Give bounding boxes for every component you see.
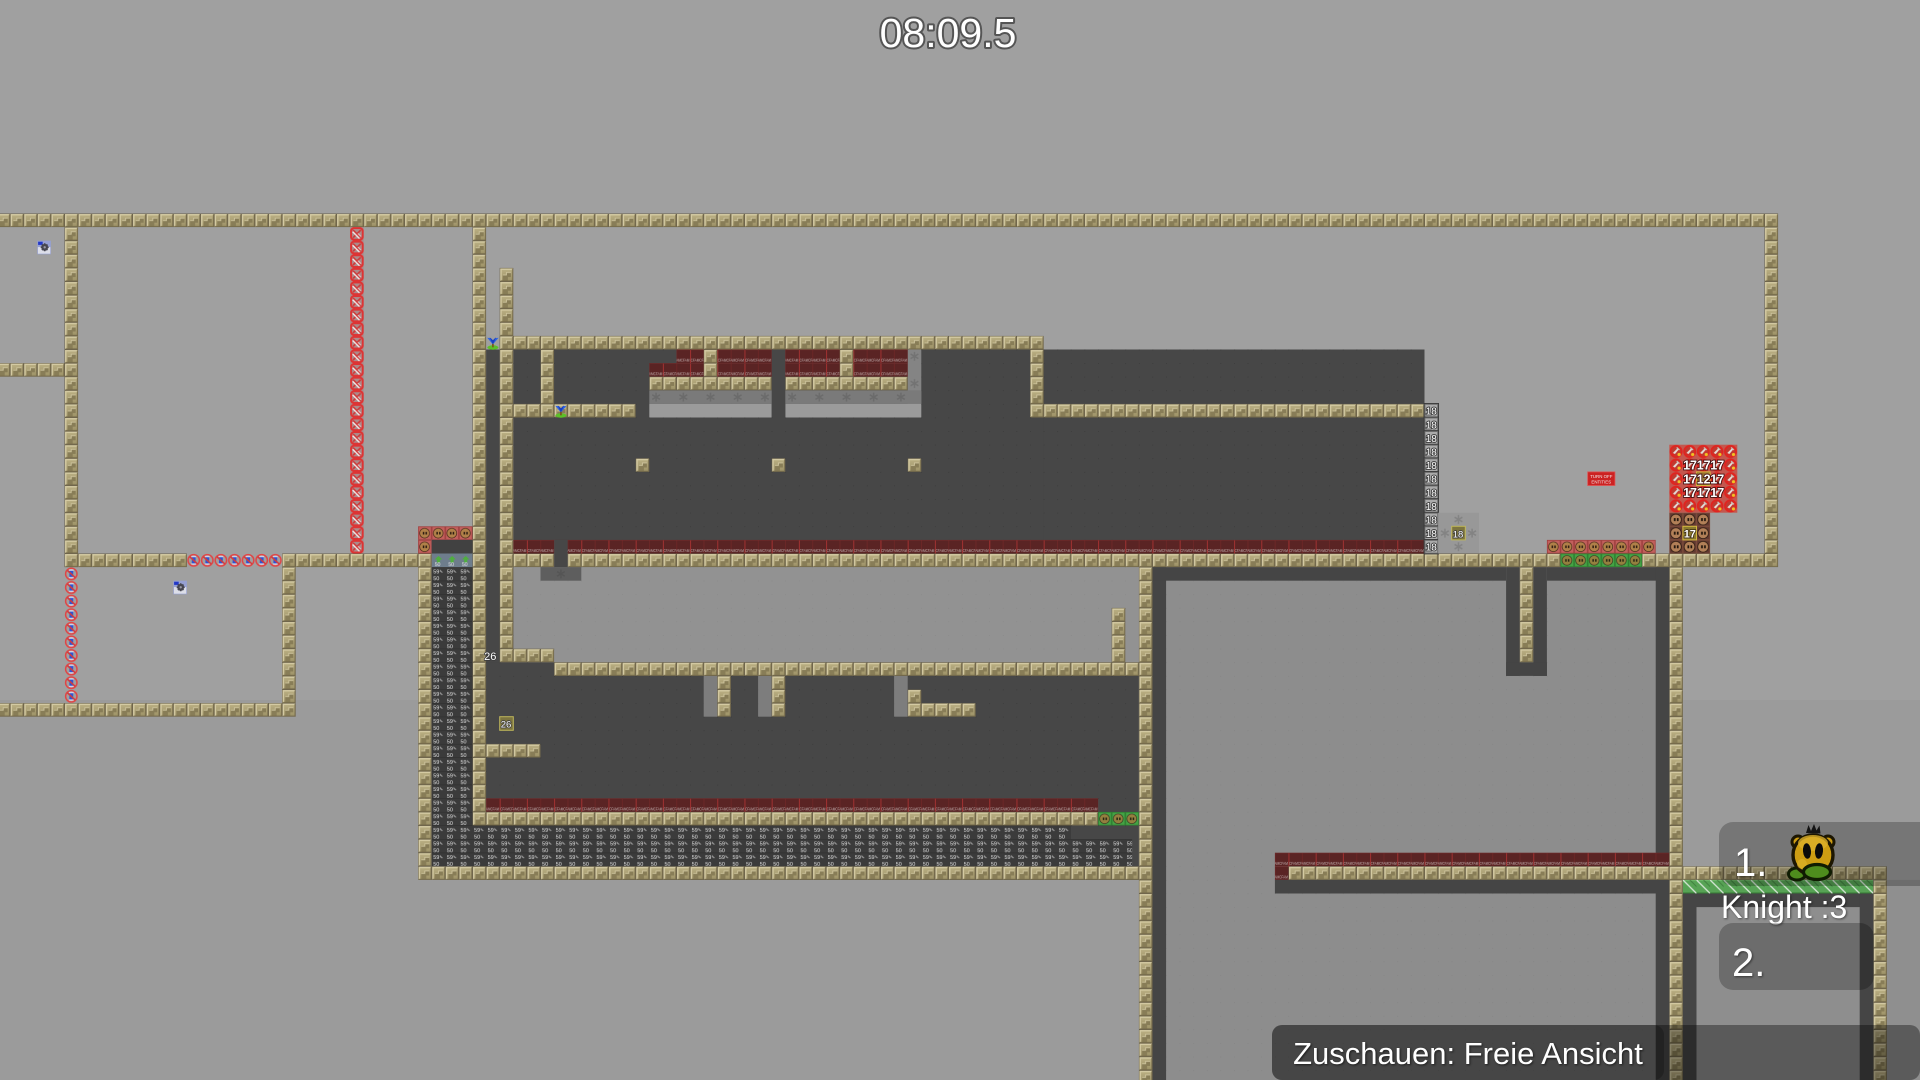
svg-text:18: 18	[1426, 529, 1438, 540]
svg-text:18: 18	[1426, 448, 1438, 459]
svg-text:17: 17	[1710, 459, 1724, 473]
svg-text:17: 17	[1683, 472, 1697, 486]
svg-text:1.: 1.	[1734, 841, 1767, 885]
svg-text:17: 17	[1683, 486, 1697, 500]
svg-text:ENTITIES: ENTITIES	[1591, 479, 1611, 484]
svg-text:17: 17	[1697, 459, 1711, 473]
svg-text:18: 18	[1453, 529, 1464, 540]
svg-text:18: 18	[1426, 488, 1438, 499]
svg-text:18: 18	[1426, 475, 1438, 486]
svg-text:17: 17	[1697, 486, 1711, 500]
svg-text:17: 17	[1683, 459, 1697, 473]
svg-text:26: 26	[501, 720, 512, 731]
svg-text:Knight :3: Knight :3	[1721, 889, 1847, 925]
svg-text:18: 18	[1426, 543, 1438, 554]
svg-text:18: 18	[1426, 502, 1438, 513]
svg-text:12: 12	[1697, 472, 1711, 486]
svg-text:18: 18	[1426, 434, 1438, 445]
svg-text:18: 18	[1426, 461, 1438, 472]
svg-text:2.: 2.	[1732, 941, 1765, 985]
svg-text:18: 18	[1426, 420, 1438, 431]
svg-text:17: 17	[1710, 486, 1724, 500]
svg-text:17: 17	[1710, 472, 1724, 486]
svg-text:17: 17	[1684, 529, 1696, 541]
svg-text:Zuschauen: Freie Ansicht: Zuschauen: Freie Ansicht	[1293, 1036, 1643, 1071]
svg-text:18: 18	[1426, 407, 1438, 418]
svg-text:18: 18	[1426, 516, 1438, 527]
svg-text:TURN OFF: TURN OFF	[1590, 474, 1613, 479]
svg-text:08:09.5: 08:09.5	[880, 10, 1017, 56]
svg-text:26: 26	[484, 651, 496, 663]
